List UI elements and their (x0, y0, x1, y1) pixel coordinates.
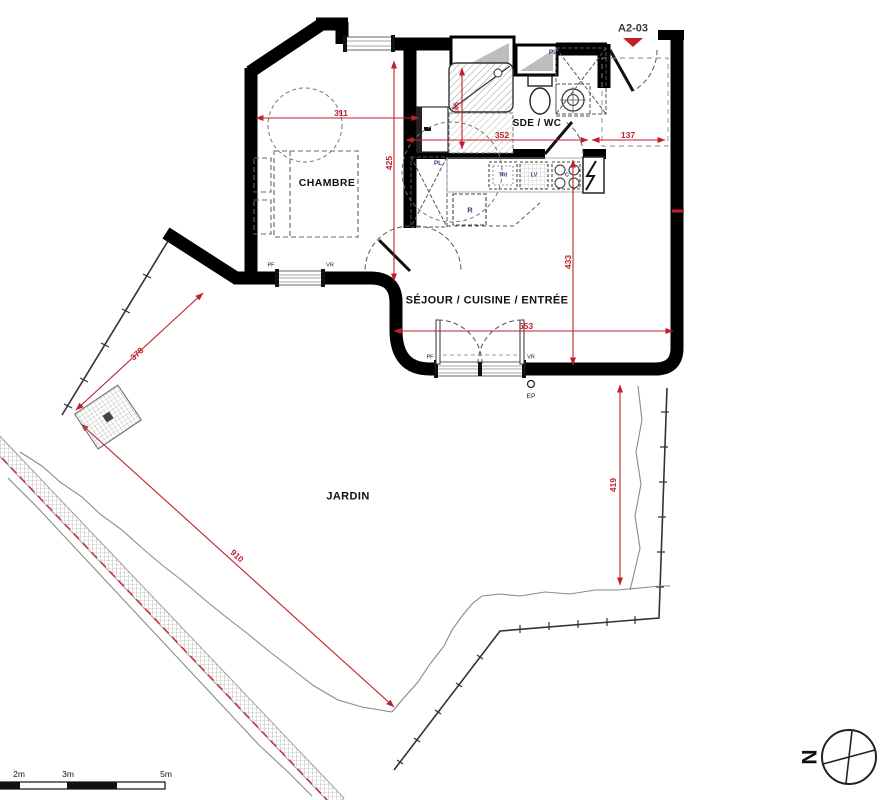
scale-mark-5m: 5m (160, 770, 172, 779)
dim-bath-width: 352 (495, 131, 509, 140)
closet-label-kitchen: PL (434, 161, 442, 168)
dim-shower-width: 185 (454, 102, 461, 114)
dishwasher-label: LV (531, 173, 538, 179)
dim-garden-side-right: 419 (609, 478, 618, 492)
fridge-label: R (467, 206, 472, 214)
electrical-panel (583, 157, 604, 193)
sorting-label: TRI (499, 173, 508, 179)
bathroom-cabinet (417, 107, 448, 152)
dim-living-width: 553 (519, 322, 533, 331)
toilet (528, 76, 552, 114)
scale-mark-3m: 3m (62, 770, 74, 779)
room-label-bedroom: CHAMBRE (299, 178, 355, 189)
entrance-triangle (623, 38, 643, 47)
shutter-label-vr-bedroom: VR (326, 263, 334, 269)
dim-bedroom-depth: 425 (385, 156, 394, 170)
north-letter: N (800, 749, 821, 764)
plan-drawing (0, 0, 889, 800)
north-compass (822, 730, 876, 784)
room-label-bathroom: SDE / WC (513, 119, 562, 129)
cooktop-label: C (565, 173, 569, 179)
floor-plan: A2-03 CHAMBRE SDE / WC SÉJOUR / CUISINE … (0, 0, 889, 800)
rainwater-pipe (528, 381, 535, 388)
scale-mark-2m: 2m (13, 770, 25, 779)
rainwater-label: EP (527, 394, 536, 401)
shutter-label-vr-living: VR (527, 355, 535, 361)
window-bedroom-north (343, 35, 395, 52)
fence-right (394, 388, 669, 770)
door-entrance (610, 50, 657, 91)
talus-band (0, 432, 344, 800)
room-label-living: SÉJOUR / CUISINE / ENTRÉE (406, 296, 569, 307)
scale-bar (0, 782, 165, 789)
door-bedroom (365, 226, 461, 271)
dim-living-depth: 433 (564, 255, 573, 269)
bed (254, 151, 358, 237)
window-bedroom-garden (275, 269, 325, 287)
window-label-pf-bedroom: PF (267, 263, 274, 269)
french-door-living (434, 320, 526, 378)
dim-entry-width: 137 (621, 131, 635, 140)
dim-bedroom-width: 311 (334, 109, 348, 118)
window-label-pf-living: PF (426, 355, 433, 361)
closet-label-entry: PL (549, 50, 557, 57)
walls (166, 22, 677, 369)
washbasin (556, 84, 590, 116)
garden-utility-box (75, 385, 142, 449)
wall-top-right-stub (658, 30, 684, 40)
counter-edge (447, 201, 542, 226)
room-label-garden: JARDIN (326, 492, 369, 503)
plan-reference: A2-03 (618, 24, 648, 35)
